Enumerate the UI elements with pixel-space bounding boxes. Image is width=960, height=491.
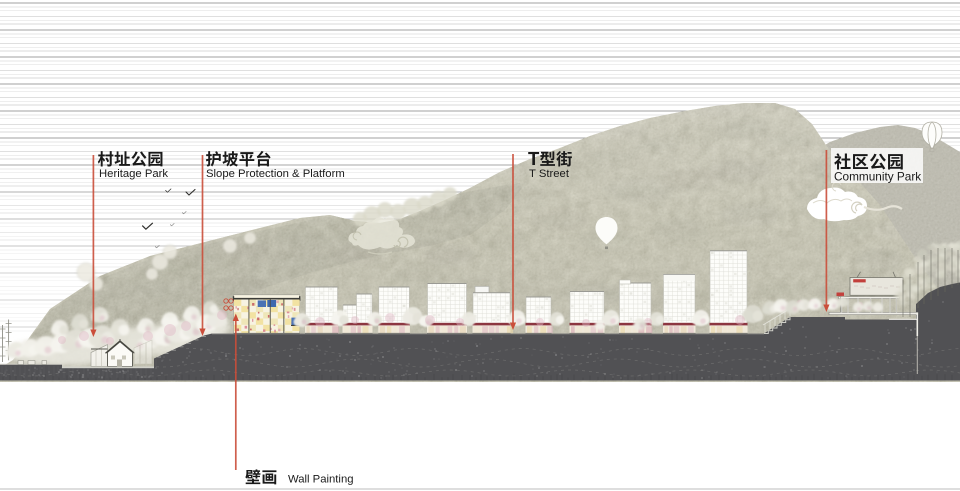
svg-text:T Street: T Street — [529, 168, 570, 180]
svg-text:Heritage Park: Heritage Park — [99, 168, 168, 180]
svg-text:T: T — [528, 148, 540, 169]
svg-text:Community Park: Community Park — [834, 170, 921, 184]
svg-text:Wall Painting: Wall Painting — [288, 474, 354, 486]
svg-text:Slope Protection & Platform: Slope Protection & Platform — [206, 168, 345, 180]
